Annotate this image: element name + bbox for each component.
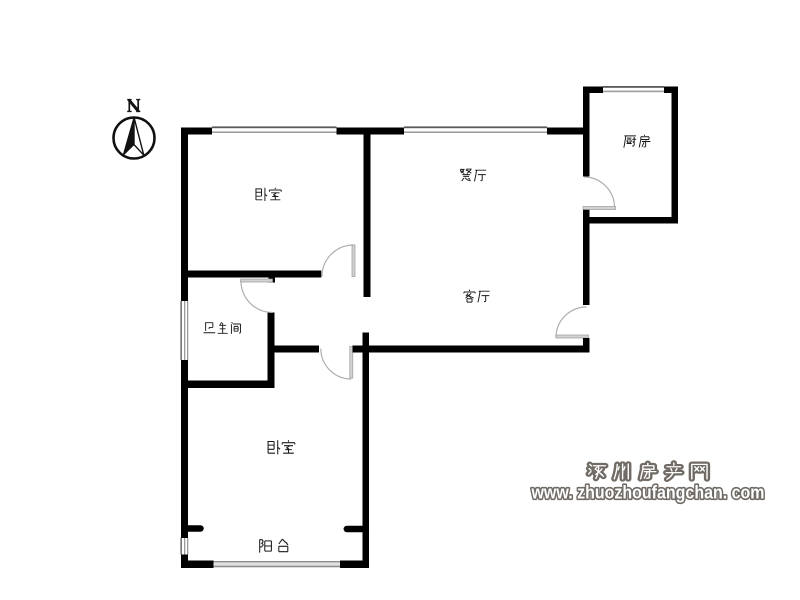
svg-text:www. zhuozhoufangchan. com: www. zhuozhoufangchan. com: [531, 483, 765, 503]
